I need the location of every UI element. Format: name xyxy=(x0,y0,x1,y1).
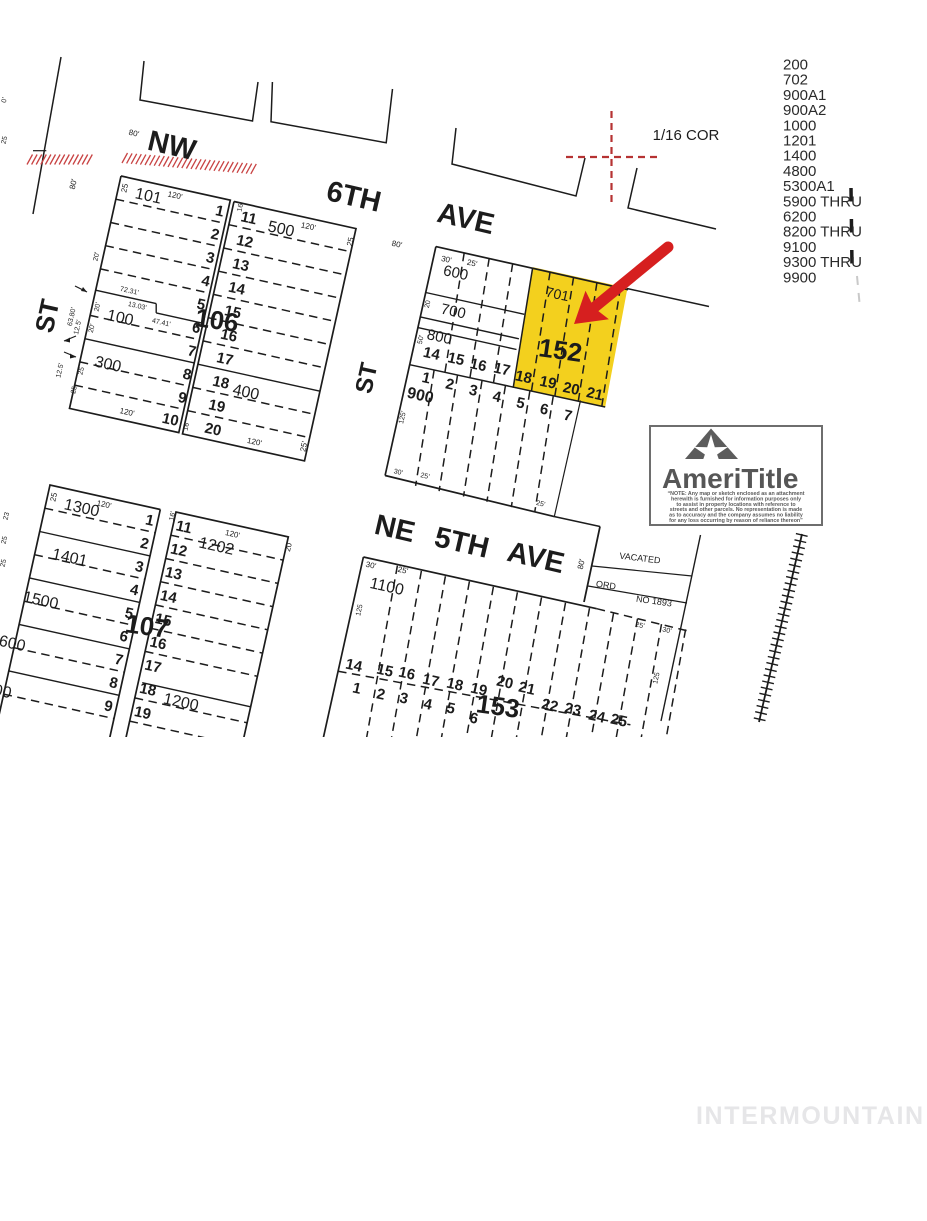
svg-text:153: 153 xyxy=(474,688,521,724)
svg-text:9900: 9900 xyxy=(783,269,816,286)
svg-text:152: 152 xyxy=(537,332,584,368)
svg-text:AmeriTitle: AmeriTitle xyxy=(662,463,798,494)
svg-text:106: 106 xyxy=(193,302,240,338)
svg-text:INTERMOUNTAIN: INTERMOUNTAIN xyxy=(696,1102,925,1130)
svg-text:1/16 COR: 1/16 COR xyxy=(653,127,720,144)
svg-text:for any loss occurring by reas: for any loss occurring by reason of reli… xyxy=(669,518,803,524)
